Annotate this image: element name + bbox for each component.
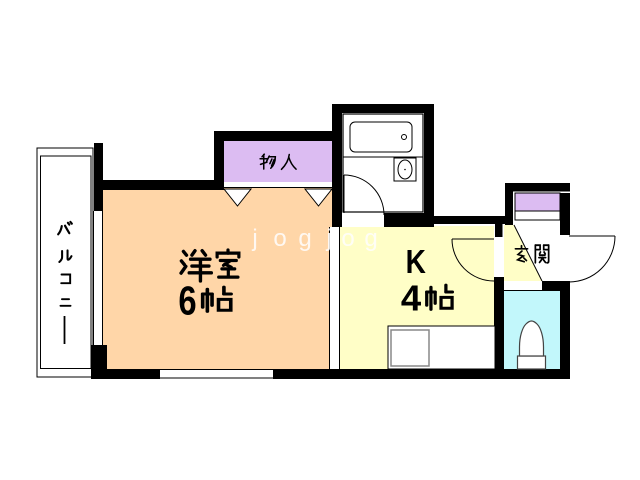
svg-text:K: K: [406, 244, 426, 281]
svg-text:g: g: [298, 225, 311, 252]
svg-text:o: o: [273, 225, 286, 252]
svg-text:g: g: [364, 225, 377, 252]
svg-text:6: 6: [178, 277, 196, 323]
svg-text:o: o: [341, 225, 354, 252]
svg-text:4: 4: [401, 277, 422, 318]
svg-text:j: j: [251, 225, 257, 252]
svg-text:j: j: [325, 225, 331, 252]
